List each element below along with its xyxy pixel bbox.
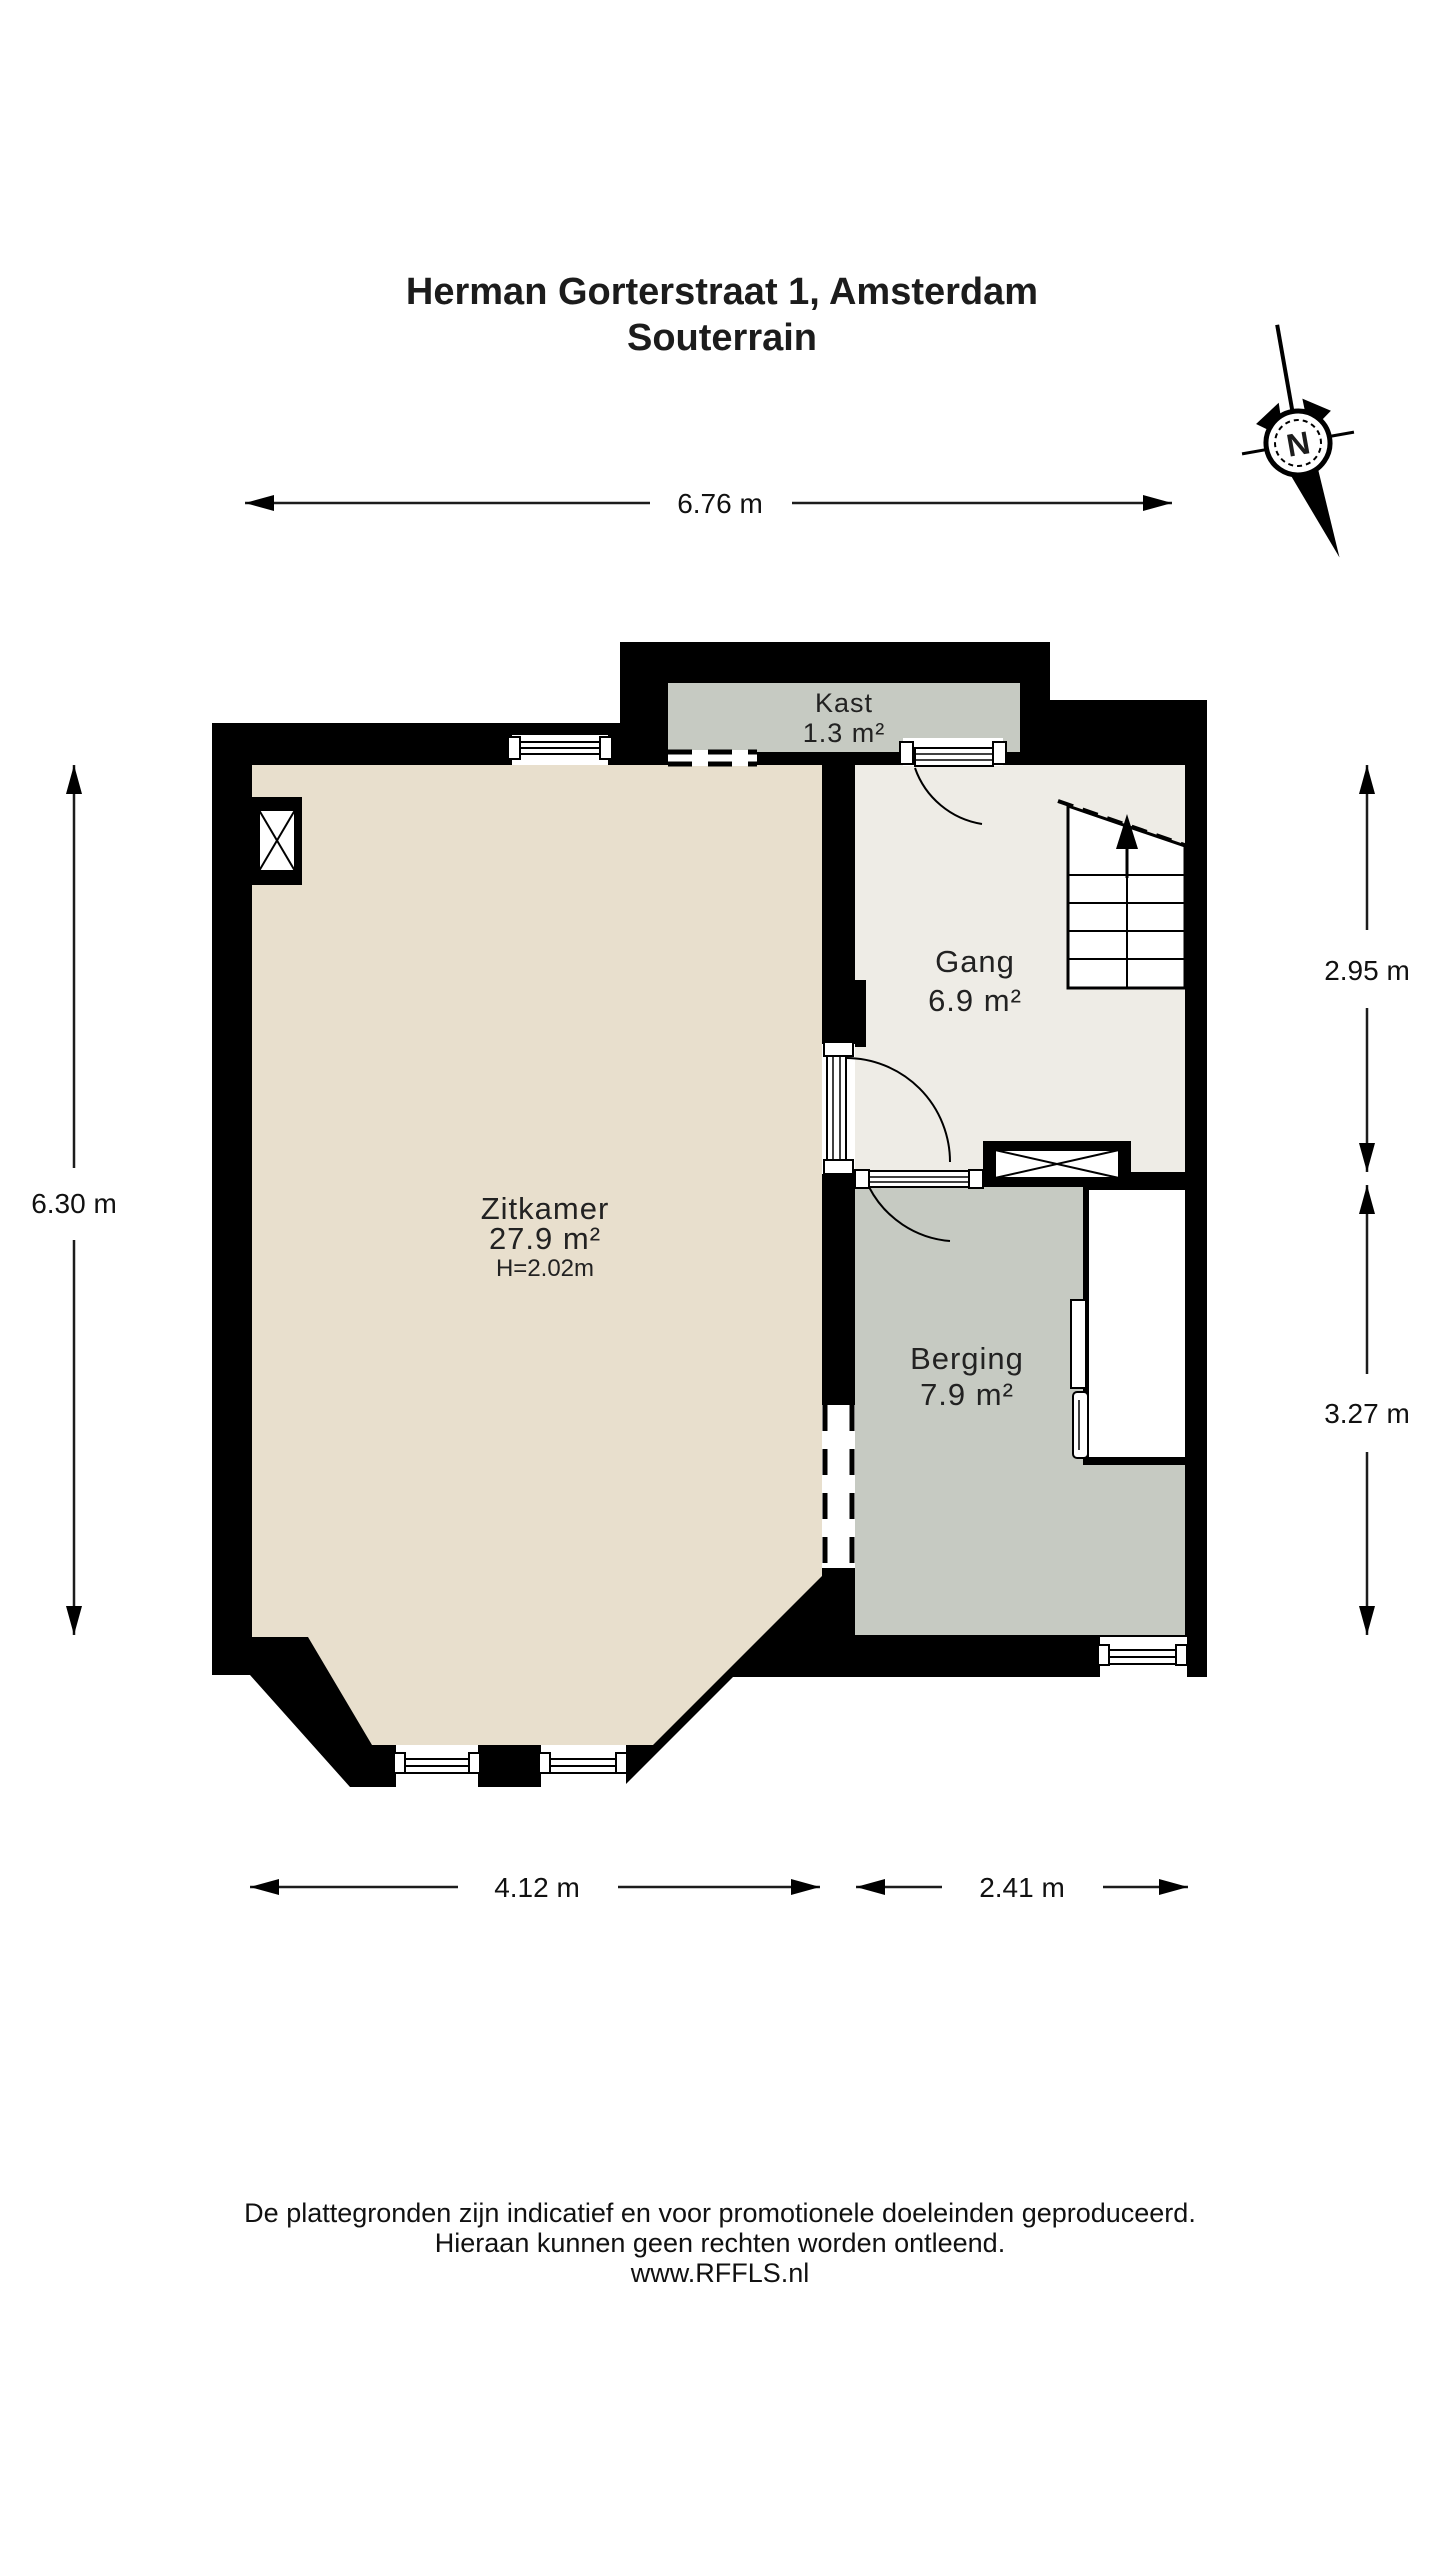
dim-top-label: 6.76 m — [677, 488, 763, 519]
dim-left-label: 6.30 m — [31, 1188, 117, 1219]
berging-area: 7.9 m² — [920, 1377, 1014, 1412]
page-title-line1: Herman Gorterstraat 1, Amsterdam — [406, 271, 1038, 313]
disclaimer-line2: Hieraan kunnen geen rechten worden ontle… — [435, 2228, 1005, 2258]
storage-closet — [1071, 1182, 1185, 1465]
gang-wall-step — [855, 980, 866, 1047]
kast-labels: Kast 1.3 m² — [803, 688, 886, 748]
berging-label: Berging — [910, 1341, 1024, 1376]
footer-disclaimer: De plattegronden zijn indicatief en voor… — [244, 2198, 1196, 2288]
zitkamer-labels: Zitkamer 27.9 m² H=2.02m — [481, 1191, 610, 1282]
berging-window — [1098, 1637, 1187, 1677]
dim-bottom-right-label: 2.41 m — [979, 1872, 1065, 1903]
gang-area: 6.9 m² — [928, 983, 1022, 1018]
disclaimer-line1: De plattegronden zijn indicatief en voor… — [244, 2198, 1196, 2228]
chimney-flue-center — [983, 1141, 1131, 1187]
dim-right-upper-label: 2.95 m — [1324, 955, 1410, 986]
zitkamer-ceiling-height: H=2.02m — [496, 1255, 594, 1282]
page-title-line2: Souterrain — [627, 317, 817, 359]
title-block: Herman Gorterstraat 1, Amsterdam Souterr… — [406, 271, 1038, 359]
dim-bottom-left-label: 4.12 m — [494, 1872, 580, 1903]
bay-window-left — [394, 1745, 480, 1787]
open-passage-berging — [822, 1405, 855, 1568]
zitkamer-area: 27.9 m² — [489, 1221, 601, 1256]
dim-right-lower-label: 3.27 m — [1324, 1398, 1410, 1429]
gang-label: Gang — [935, 944, 1015, 979]
zitkamer-top-window — [508, 735, 612, 765]
open-passage-kast — [668, 750, 757, 766]
south-needle — [1290, 465, 1340, 563]
bay-window-right — [539, 1745, 627, 1787]
north-needle-line — [1277, 325, 1293, 414]
berging-labels: Berging 7.9 m² — [910, 1341, 1024, 1412]
kast-area: 1.3 m² — [803, 718, 886, 748]
floorplan-page: Herman Gorterstraat 1, Amsterdam Souterr… — [0, 0, 1440, 2560]
website-text: www.RFFLS.nl — [630, 2258, 810, 2288]
compass-rose: N — [1221, 315, 1375, 571]
floorplan-canvas: Herman Gorterstraat 1, Amsterdam Souterr… — [0, 0, 1440, 2560]
chimney-flue-left — [252, 797, 302, 885]
kast-label: Kast — [815, 688, 873, 718]
